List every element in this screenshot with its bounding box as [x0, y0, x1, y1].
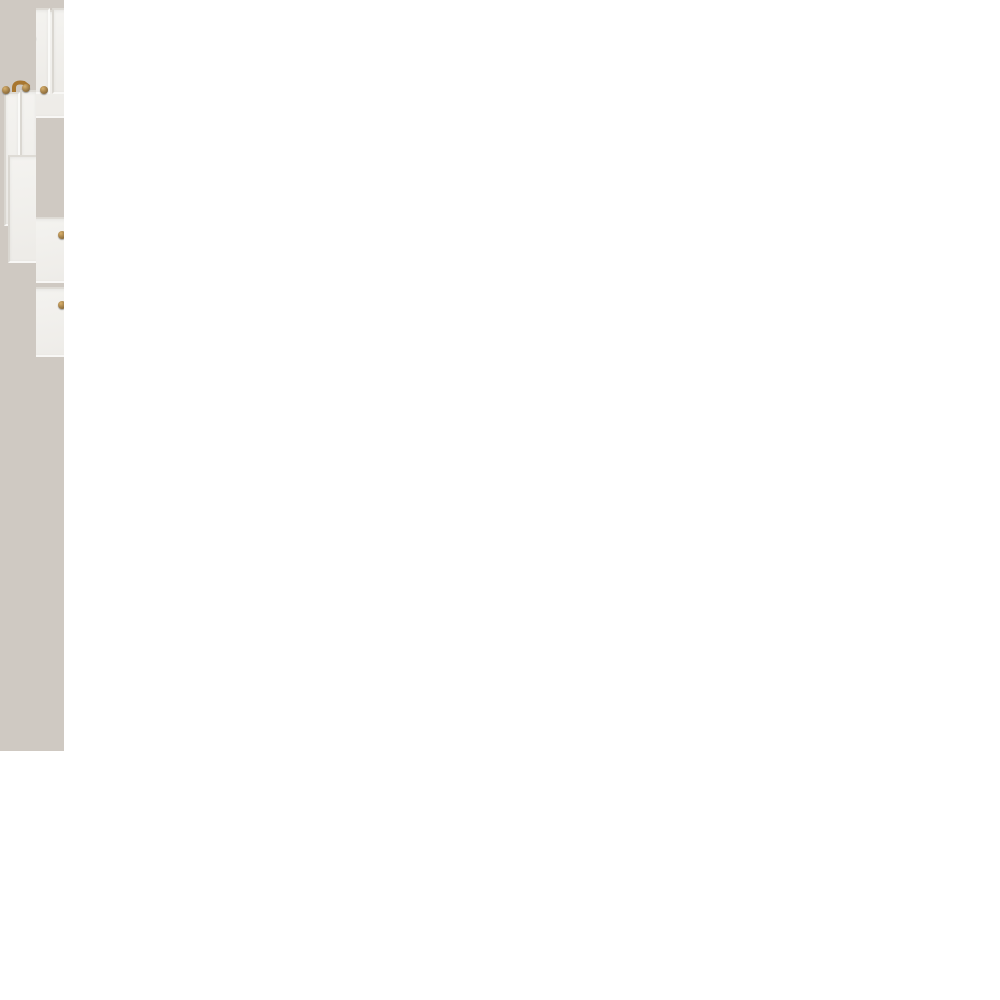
stool-spoke — [0, 263, 36, 331]
drawer-knob — [58, 231, 64, 239]
photo-bottom-right-kitchen — [0, 0, 36, 457]
stool-spoke — [0, 331, 36, 397]
cabinet-knob — [2, 86, 10, 94]
chair-leg — [0, 673, 64, 751]
cabinet-knob — [40, 86, 48, 94]
copper-ladle — [0, 16, 20, 36]
cabinet-door-panel — [8, 155, 36, 263]
drawer-knob — [58, 301, 64, 309]
cabinet-door-panel — [52, 8, 64, 94]
cabinet-knob — [22, 84, 30, 92]
copper-whisk — [0, 47, 12, 63]
copper-spoon — [0, 36, 11, 47]
dining-chair-partial — [0, 515, 31, 675]
copper-turner — [0, 63, 10, 78]
copper-spatula — [0, 0, 11, 16]
stool-spoke — [0, 397, 36, 457]
kitchen-collage: Línea Vik una cocina versátil para los m… — [0, 0, 1000, 1000]
